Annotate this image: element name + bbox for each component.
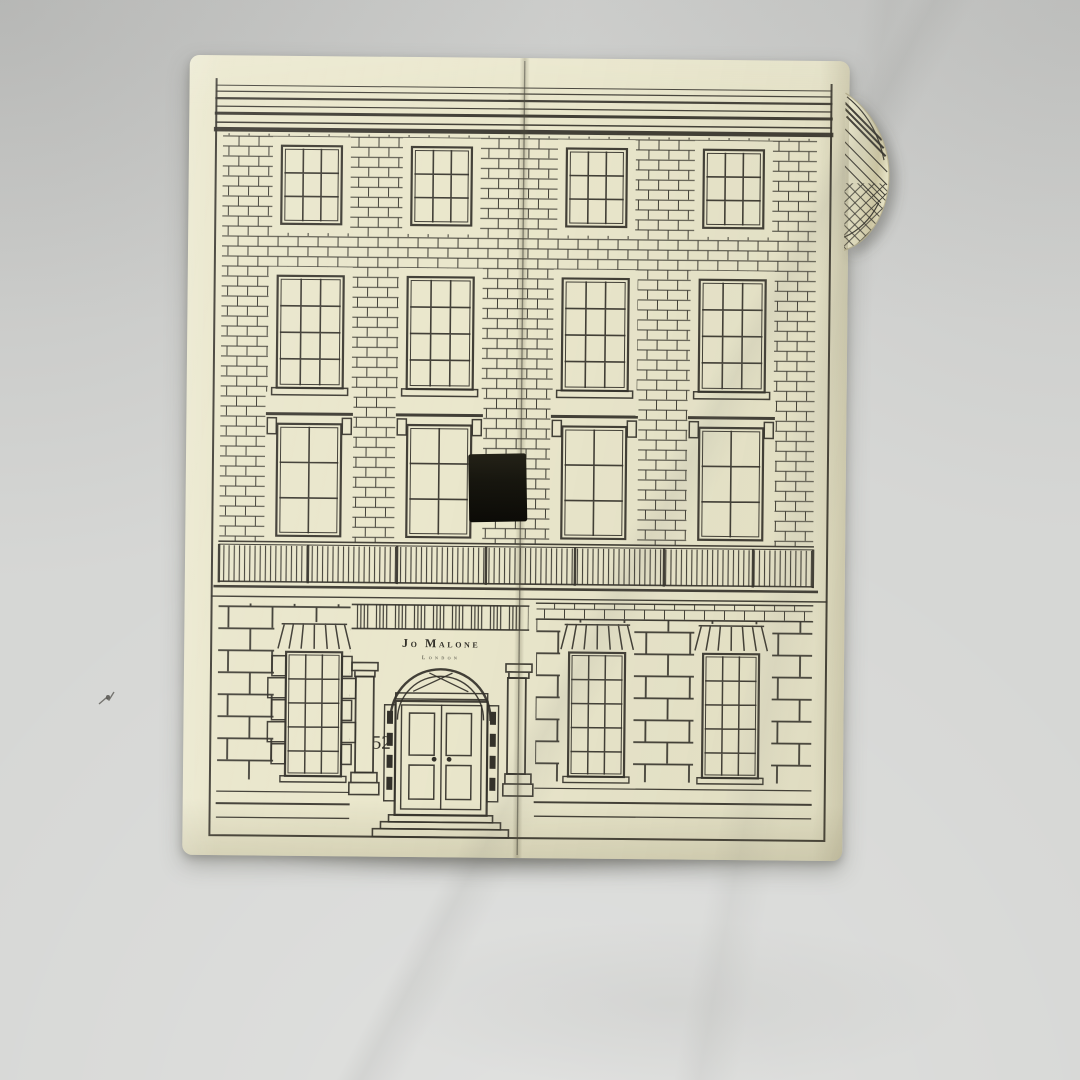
entrance-steps <box>372 815 508 838</box>
door-knob <box>432 757 437 762</box>
house-number: 52 <box>372 733 391 754</box>
brand-subtitle: London <box>422 655 460 661</box>
right-shop-bay <box>535 603 813 819</box>
left-shop-bay <box>217 603 357 818</box>
shop-entrance: Jo Malone London <box>348 604 534 838</box>
townhouse-facade-artwork: Jo Malone London <box>182 55 850 861</box>
front-door <box>395 693 488 816</box>
advent-calendar-box: Jo Malone London <box>182 55 850 861</box>
ribbon-pull-tab <box>468 453 527 522</box>
brand-name: Jo Malone <box>402 636 481 651</box>
shop-sign: Jo Malone London <box>402 636 481 662</box>
backdrop-scuff-mark <box>94 682 124 712</box>
studio-backdrop: Jo Malone London <box>0 0 1080 1080</box>
door-knob <box>447 757 452 762</box>
peeling-corner <box>816 87 938 278</box>
